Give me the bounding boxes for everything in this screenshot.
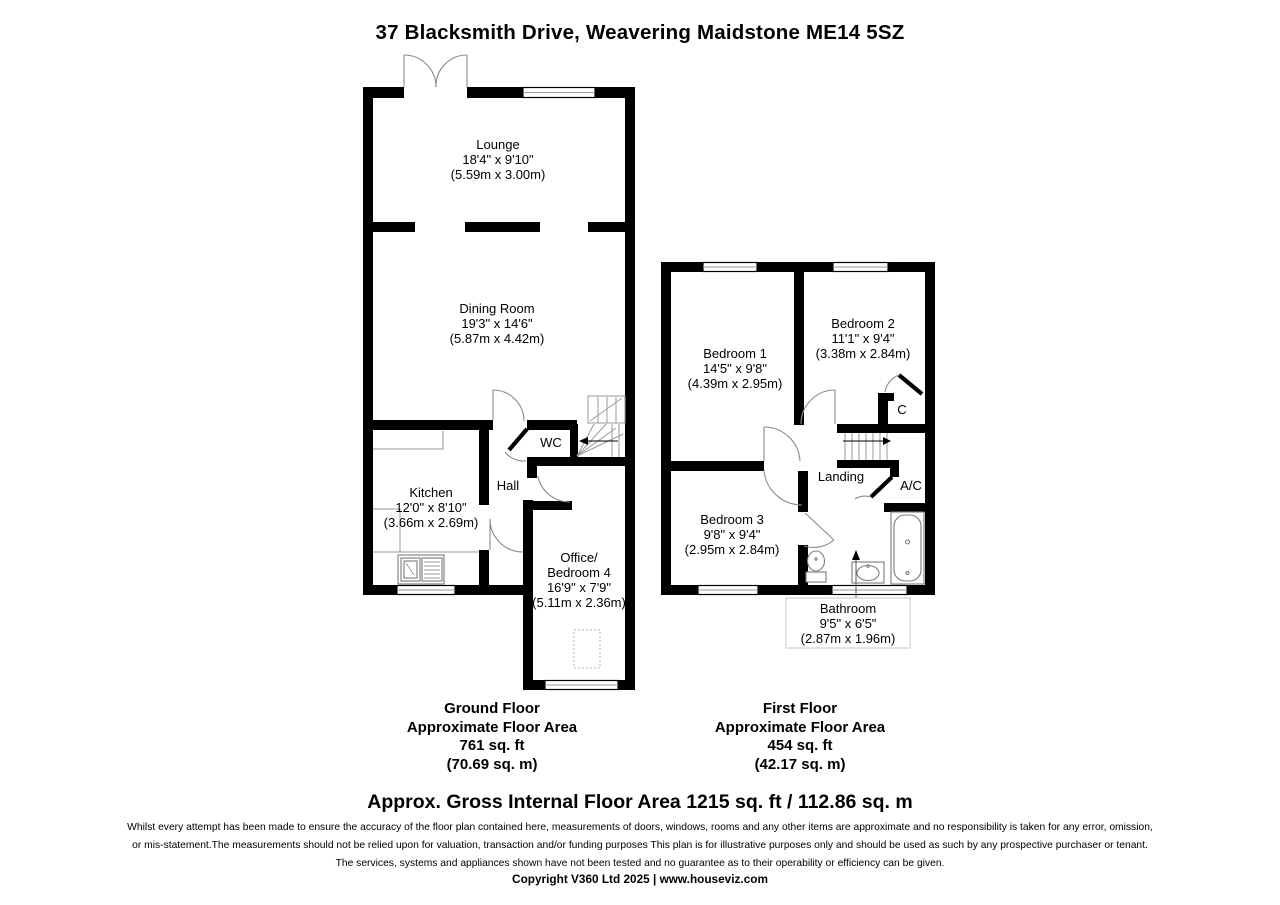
dining-metric: (5.87m x 4.42m): [450, 331, 545, 346]
landing-label: Landing: [818, 469, 864, 484]
cupboard-label: C: [897, 402, 906, 417]
toilet-fixture: [808, 551, 825, 571]
ground-room-labels: Lounge 18'4" x 9'10" (5.59m x 3.00m) Din…: [384, 137, 626, 610]
disclaimer-line-1: Whilst every attempt has been made to en…: [40, 819, 1240, 837]
kitchen-sink-fixture: [398, 555, 444, 584]
ground-floor-sqft: 761 sq. ft: [332, 737, 652, 756]
office-imperial: 16'9" x 7'9": [547, 580, 611, 595]
ground-floor-area-label: Ground Floor Approximate Floor Area 761 …: [332, 700, 652, 774]
floorplan-page: 37 Blacksmith Drive, Weavering Maidstone…: [0, 0, 1280, 905]
office-metric: (5.11m x 2.36m): [532, 595, 626, 610]
disclaimer-text: Whilst every attempt has been made to en…: [40, 819, 1240, 873]
bedroom1-metric: (4.39m x 2.95m): [688, 376, 783, 391]
first-floor-title: First Floor: [640, 700, 960, 719]
bedroom1-imperial: 14'5" x 9'8": [703, 361, 767, 376]
disclaimer-line-2: or mis-statement.The measurements should…: [40, 837, 1240, 855]
hall-name: Hall: [497, 478, 520, 493]
lounge-name: Lounge: [476, 137, 519, 152]
gross-area-summary: Approx. Gross Internal Floor Area 1215 s…: [0, 791, 1280, 814]
bathroom-metric: (2.87m x 1.96m): [801, 631, 896, 646]
kitchen-name: Kitchen: [409, 485, 452, 500]
leader-arrow: [852, 550, 860, 560]
first-floor-approx: Approximate Floor Area: [640, 719, 960, 738]
lounge-imperial: 18'4" x 9'10": [462, 152, 534, 167]
copyright-text: Copyright V360 Ltd 2025 | www.houseviz.c…: [0, 872, 1280, 886]
bedroom3-imperial: 9'8" x 9'4": [704, 527, 761, 542]
disclaimer-line-3: The services, systems and appliances sho…: [40, 855, 1240, 873]
first-floor-sqft: 454 sq. ft: [640, 737, 960, 756]
bathroom-imperial: 9'5" x 6'5": [820, 616, 877, 631]
hatch-dashed-outline: [574, 630, 600, 668]
bedroom2-metric: (3.38m x 2.84m): [816, 346, 911, 361]
bedroom1-name: Bedroom 1: [703, 346, 767, 361]
lounge-metric: (5.59m x 3.00m): [451, 167, 546, 182]
airing-cupboard-label: A/C: [900, 478, 922, 493]
bedroom2-name: Bedroom 2: [831, 316, 895, 331]
bathroom-name: Bathroom: [820, 601, 876, 616]
first-stairs: [843, 433, 891, 460]
ground-floor-sqm: (70.69 sq. m): [332, 756, 652, 775]
ground-floor-approx: Approximate Floor Area: [332, 719, 652, 738]
wc-name: WC: [540, 435, 562, 450]
bathroom-fixtures: [806, 512, 924, 584]
french-doors: [404, 55, 467, 87]
first-floor-area-label: First Floor Approximate Floor Area 454 s…: [640, 700, 960, 774]
bedroom3-metric: (2.95m x 2.84m): [685, 542, 780, 557]
kitchen-metric: (3.66m x 2.69m): [384, 515, 479, 530]
first-floor-plan: Bedroom 1 14'5" x 9'8" (4.39m x 2.95m) B…: [661, 262, 935, 648]
dining-imperial: 19'3" x 14'6": [461, 316, 533, 331]
ground-floor-plan: Lounge 18'4" x 9'10" (5.59m x 3.00m) Din…: [363, 55, 635, 690]
bedroom2-imperial: 11'1" x 9'4": [831, 331, 894, 346]
kitchen-imperial: 12'0" x 8'10": [395, 500, 467, 515]
bedroom3-name: Bedroom 3: [700, 512, 764, 527]
dining-name: Dining Room: [459, 301, 534, 316]
first-floor-sqm: (42.17 sq. m): [640, 756, 960, 775]
ground-floor-title: Ground Floor: [332, 700, 652, 719]
office-name1: Office/: [560, 550, 598, 565]
office-name2: Bedroom 4: [547, 565, 611, 580]
ground-stairs: [577, 396, 625, 457]
